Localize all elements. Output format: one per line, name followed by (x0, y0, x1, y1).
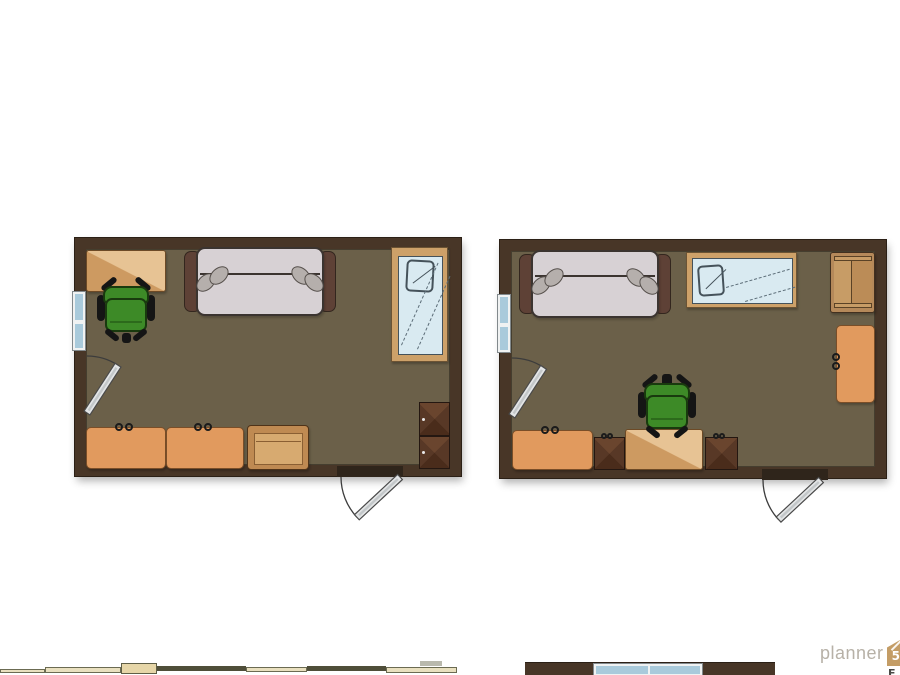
chair-seatline (651, 418, 683, 420)
chair-seat (105, 298, 147, 332)
handle-knob (204, 423, 212, 431)
handle-knob (713, 433, 719, 439)
cabinet-cell (419, 436, 450, 470)
sketch-line (706, 269, 727, 289)
chair-seatline (110, 321, 142, 323)
planner5d-badge-icon: 5d (887, 640, 900, 666)
shelf-panel (851, 261, 872, 303)
reflection-line (726, 269, 790, 288)
window-mullion (499, 323, 509, 327)
cabinet-cell (594, 437, 625, 470)
reflection-line (745, 287, 795, 302)
cropped-furniture[interactable] (121, 663, 157, 674)
sofa[interactable] (184, 247, 336, 316)
handle-knob (541, 426, 549, 434)
window-mullion (648, 665, 650, 675)
dresser[interactable] (86, 427, 166, 469)
cropped-furniture[interactable] (307, 666, 386, 671)
handle-knob (194, 423, 202, 431)
cropped-furniture[interactable] (45, 667, 121, 673)
shelf-cabinet[interactable] (830, 252, 875, 313)
nightstand[interactable] (247, 425, 309, 470)
cabinet-cell (705, 437, 738, 470)
chair-base (122, 333, 131, 343)
handle-knob (832, 362, 840, 370)
door-opening[interactable] (337, 466, 403, 477)
window[interactable] (72, 291, 86, 351)
dresser[interactable] (836, 325, 875, 403)
sofa[interactable] (519, 250, 671, 318)
mirror-glass (692, 258, 793, 304)
drawer-front (254, 433, 303, 465)
knob-dot (422, 451, 425, 454)
window[interactable] (497, 294, 511, 353)
cabinet-cell (419, 402, 450, 436)
shelf-panel (834, 261, 851, 303)
handle-knob (551, 426, 559, 434)
handle-knob (125, 423, 133, 431)
drawer-line (256, 441, 301, 442)
badge-label: 5d (887, 649, 900, 663)
cropped-furniture[interactable] (420, 661, 442, 666)
corner-cabinet[interactable] (419, 402, 450, 469)
chair-seat (646, 395, 688, 429)
cropped-furniture[interactable] (386, 667, 457, 673)
wall-mirror[interactable] (686, 252, 797, 308)
knob-dot (422, 418, 425, 421)
cropped-furniture[interactable] (157, 666, 246, 671)
cropped-glyph: E (888, 667, 898, 675)
handle-knob (115, 423, 123, 431)
cabinet[interactable] (594, 437, 625, 470)
shelf-bar (834, 303, 872, 308)
window-mullion (74, 320, 84, 324)
floor-plan (0, 0, 900, 675)
wall-mirror[interactable] (391, 247, 448, 362)
cropped-room-window[interactable] (593, 663, 703, 675)
cropped-furniture[interactable] (0, 669, 45, 673)
dresser[interactable] (166, 427, 244, 469)
shelf-divider (851, 261, 852, 303)
dresser[interactable] (512, 430, 593, 470)
cabinet[interactable] (705, 437, 738, 470)
mirror-glass (398, 256, 443, 355)
watermark-text: planner (820, 640, 884, 666)
floorplan-canvas: planner 5d E (0, 0, 900, 675)
planner5d-watermark: planner 5d (820, 640, 900, 666)
handle-knob (832, 353, 840, 361)
office-chair[interactable] (637, 374, 697, 438)
mirror-sketch (697, 264, 725, 297)
office-chair[interactable] (96, 277, 156, 341)
cropped-furniture[interactable] (246, 667, 307, 672)
door-opening[interactable] (762, 469, 828, 480)
